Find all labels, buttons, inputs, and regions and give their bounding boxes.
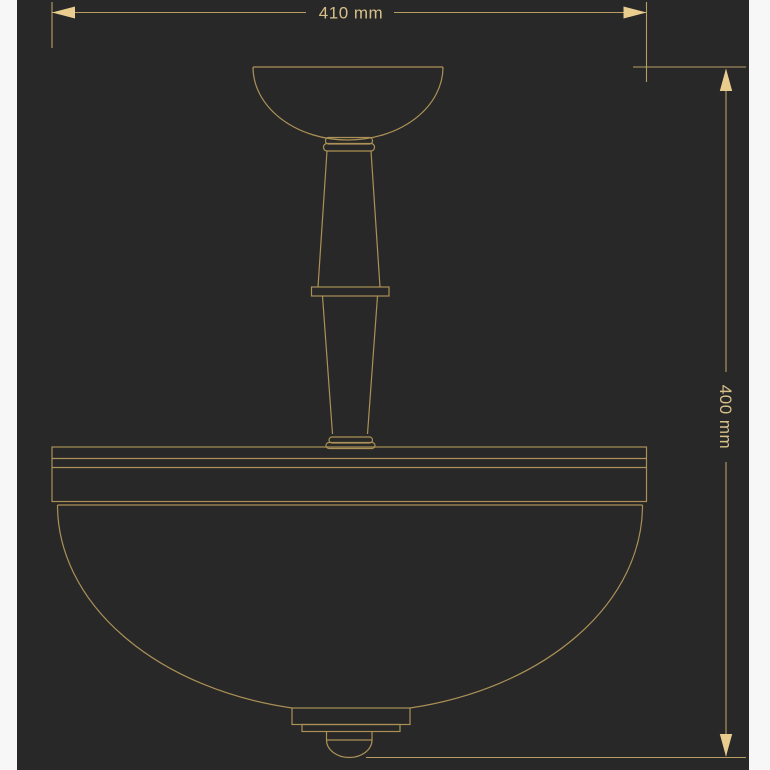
width-dimension-label: 410 mm bbox=[319, 4, 383, 23]
drawing-canvas: 410 mm 400 mm bbox=[0, 0, 770, 770]
drawing-background bbox=[17, 0, 749, 770]
height-dimension-label: 400 mm bbox=[716, 385, 735, 449]
page: 410 mm 400 mm bbox=[0, 0, 770, 770]
